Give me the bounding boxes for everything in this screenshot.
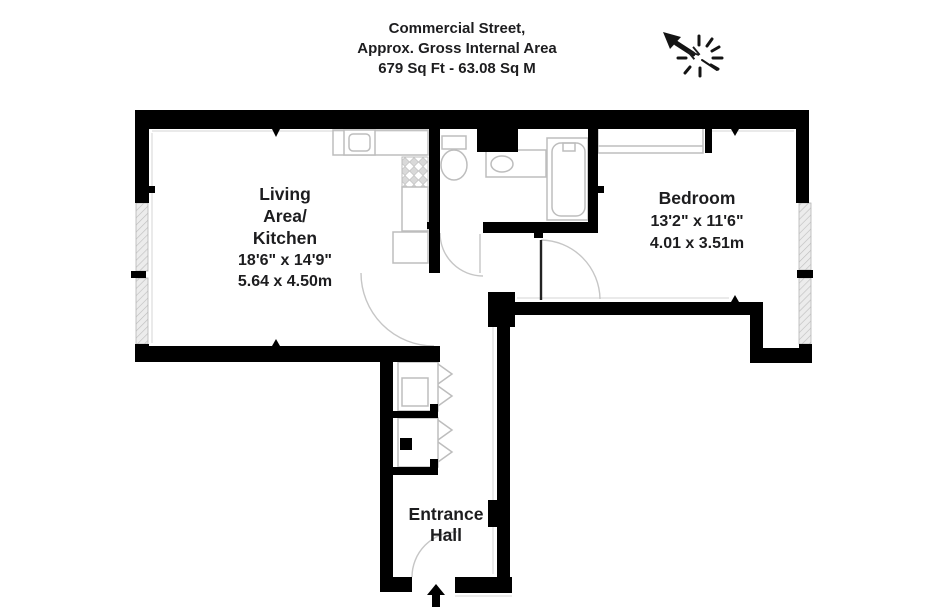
wall-closet-post bbox=[400, 438, 412, 450]
bedroom-dims-imperial: 13'2" x 11'6" bbox=[650, 213, 743, 230]
wall-bedroom-bottom bbox=[515, 302, 763, 315]
wall-right-upper bbox=[796, 110, 809, 203]
wall-entrance-bottom-left bbox=[380, 577, 412, 592]
living-label-line2: Area/ bbox=[263, 206, 307, 226]
window-right-mid-post bbox=[797, 270, 813, 278]
living-dims-imperial: 18'6" x 14'9" bbox=[238, 252, 332, 269]
wall-bedroom-door-stub bbox=[534, 227, 543, 238]
wall-living-bottom bbox=[135, 346, 440, 362]
wall-living-bathroom-divider bbox=[429, 125, 440, 273]
wall-hall-left bbox=[380, 362, 393, 590]
bedroom-dims-metric: 4.01 x 3.51m bbox=[650, 235, 744, 252]
wall-left-tick bbox=[146, 186, 155, 193]
wall-bathroom-duct bbox=[477, 112, 518, 152]
wall-hall-right bbox=[497, 327, 510, 593]
floorplan-page: Commercial Street, Approx. Gross Interna… bbox=[0, 0, 946, 615]
wall-bedroom-left bbox=[588, 125, 598, 233]
wash-basin bbox=[491, 156, 513, 172]
wall-hall-right-pier bbox=[488, 500, 497, 527]
living-dims-metric: 5.64 x 4.50m bbox=[238, 273, 332, 290]
entrance-hall-label-line2: Hall bbox=[430, 525, 462, 545]
window-right-upper bbox=[799, 203, 811, 270]
entrance-hall-label-line1: Entrance bbox=[409, 504, 484, 524]
window-right-lower bbox=[799, 278, 811, 344]
wall-hall-corner-block bbox=[488, 292, 515, 327]
wall-closet-divider bbox=[380, 411, 438, 418]
wall-bedroom-step-horizontal bbox=[763, 348, 812, 363]
window-left-lower bbox=[136, 278, 148, 344]
window-left-upper bbox=[136, 203, 148, 271]
wall-wardrobe-stub bbox=[705, 125, 712, 153]
wall-closet-lower-stub bbox=[430, 459, 438, 467]
wall-bathroom-door-stub bbox=[427, 222, 440, 229]
kitchen-hob-icon bbox=[402, 157, 428, 187]
wall-closet-bottom bbox=[380, 467, 438, 475]
bedroom-label: Bedroom bbox=[659, 188, 736, 208]
wall-bedroom-left-tick bbox=[597, 186, 604, 193]
wall-bedroom-step-vertical bbox=[750, 302, 763, 363]
wall-entrance-bottom-right bbox=[455, 577, 512, 593]
floorplan-drawing: Commercial Street, Approx. Gross Interna… bbox=[0, 0, 946, 615]
plan-address: Commercial Street, bbox=[389, 20, 526, 37]
window-left-mid-post bbox=[131, 271, 146, 278]
living-label-line1: Living bbox=[259, 184, 311, 204]
plan-area-value: 679 Sq Ft - 63.08 Sq M bbox=[378, 60, 536, 77]
living-label-line3: Kitchen bbox=[253, 228, 317, 248]
plan-area-label: Approx. Gross Internal Area bbox=[357, 40, 557, 57]
wall-closet-upper-stub bbox=[430, 404, 438, 412]
